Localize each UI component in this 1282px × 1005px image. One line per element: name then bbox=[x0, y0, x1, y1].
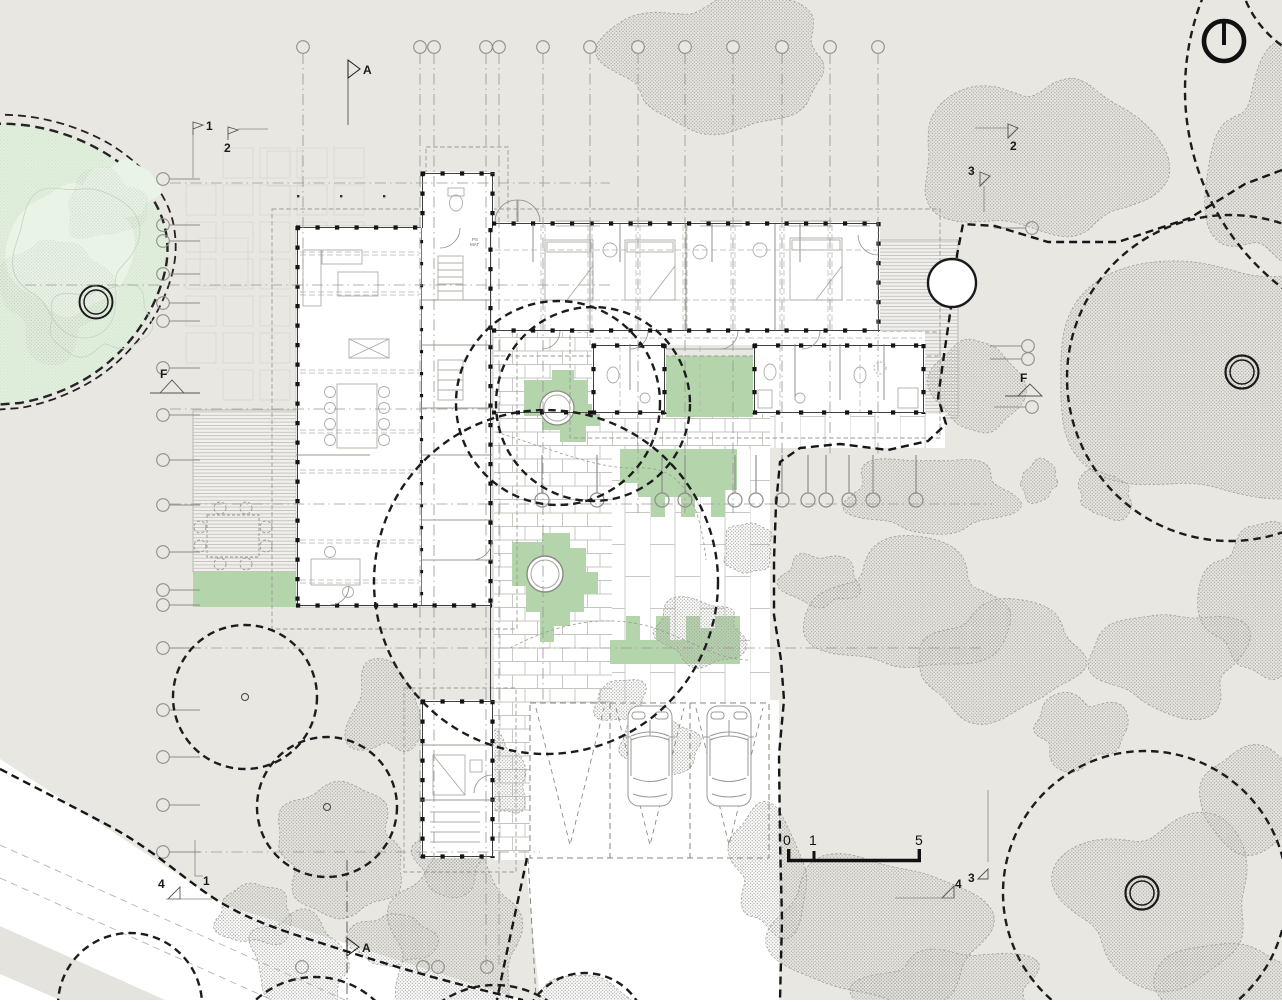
svg-text:4: 4 bbox=[158, 877, 165, 891]
svg-text:1: 1 bbox=[809, 832, 817, 848]
svg-text:5: 5 bbox=[915, 832, 923, 848]
svg-text:F: F bbox=[1020, 371, 1027, 385]
svg-text:2: 2 bbox=[1010, 139, 1017, 153]
svg-text:MAT: MAT bbox=[470, 242, 479, 247]
svg-text:1: 1 bbox=[203, 874, 210, 888]
svg-text:3: 3 bbox=[968, 871, 975, 885]
svg-text:4: 4 bbox=[955, 877, 962, 891]
svg-text:1: 1 bbox=[206, 119, 213, 133]
svg-text:0: 0 bbox=[783, 832, 791, 848]
svg-text:2: 2 bbox=[224, 141, 231, 155]
svg-text:A: A bbox=[363, 63, 372, 77]
svg-text:A: A bbox=[362, 941, 371, 955]
svg-text:3: 3 bbox=[968, 164, 975, 178]
svg-text:F: F bbox=[160, 367, 167, 381]
